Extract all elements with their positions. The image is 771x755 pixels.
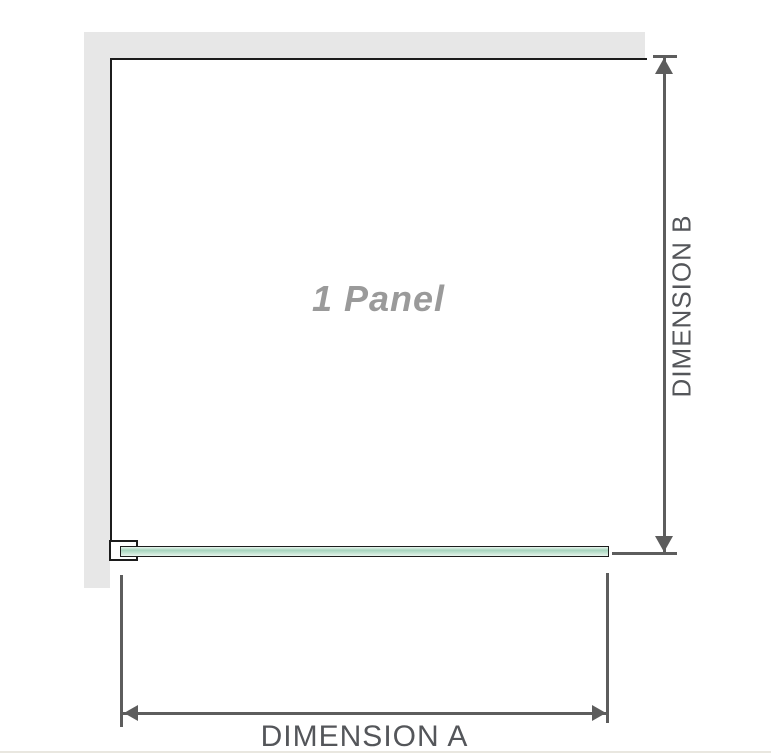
page-divider — [0, 751, 771, 753]
dimension-b-arrow-down-icon — [655, 536, 673, 552]
dimension-a-right-extension — [606, 573, 609, 723]
panel-label: 1 Panel — [110, 278, 647, 320]
dimension-a-left-extension — [120, 575, 123, 727]
dimension-a-arrow-right-icon — [592, 705, 606, 721]
dimension-b-bottom-cap — [612, 552, 677, 555]
panel-top-edge — [110, 58, 647, 60]
dimension-b-arrow-up-icon — [655, 58, 673, 74]
wall-top-band — [84, 32, 645, 58]
dimension-a-label: DIMENSION A — [122, 720, 607, 754]
shower-panel-diagram: 1 Panel DIMENSION B DIMENSION A — [0, 0, 771, 755]
dimension-a-line — [123, 712, 607, 715]
dimension-a-arrow-left-icon — [124, 705, 138, 721]
dimension-b-label: DIMENSION B — [667, 215, 698, 398]
wall-left-band — [84, 32, 110, 588]
glass-panel-bar — [120, 546, 609, 557]
